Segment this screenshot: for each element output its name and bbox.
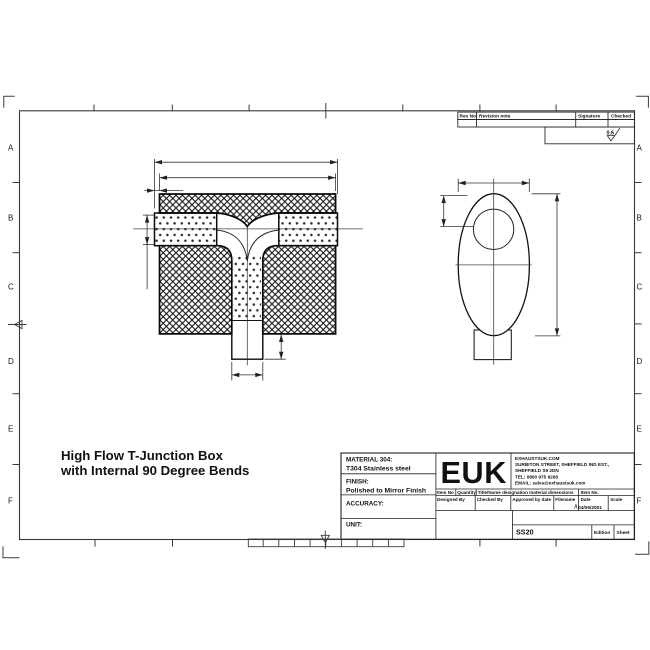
svg-text:SURBITON STREET, SHEFFIELD IND: SURBITON STREET, SHEFFIELD IND EST., bbox=[515, 462, 609, 467]
svg-text:TEL: 0800 975 9268: TEL: 0800 975 9268 bbox=[515, 474, 558, 479]
svg-text:MATERIAL 304:: MATERIAL 304: bbox=[346, 457, 392, 464]
svg-text:E: E bbox=[8, 425, 13, 434]
svg-text:Rev No: Rev No bbox=[460, 114, 477, 120]
svg-text:E: E bbox=[637, 425, 642, 434]
svg-text:with Internal 90 Degree Bends: with Internal 90 Degree Bends bbox=[60, 463, 249, 478]
svg-text:A: A bbox=[637, 144, 643, 153]
svg-text:04/06/2001: 04/06/2001 bbox=[578, 505, 602, 511]
svg-text:Edition: Edition bbox=[594, 530, 610, 536]
svg-text:D: D bbox=[8, 357, 14, 366]
svg-text:Item No: Item No bbox=[437, 490, 454, 495]
svg-text:Signature: Signature bbox=[578, 114, 600, 120]
svg-text:F: F bbox=[637, 497, 642, 506]
svg-text:C: C bbox=[8, 283, 14, 292]
svg-text:Title/Name designation materia: Title/Name designation material dimensio… bbox=[478, 490, 574, 495]
svg-text:Scale: Scale bbox=[610, 497, 622, 502]
svg-text:Revision note: Revision note bbox=[479, 114, 511, 120]
svg-text:Checked By: Checked By bbox=[477, 497, 504, 502]
svg-text:Date: Date bbox=[581, 497, 591, 502]
svg-text:Filename: Filename bbox=[555, 497, 575, 502]
svg-text:T304 Stainless steel: T304 Stainless steel bbox=[346, 466, 411, 473]
svg-text:D: D bbox=[637, 357, 643, 366]
svg-text:A: A bbox=[8, 144, 14, 153]
svg-text:EMAIL: sales@exhaustsuk.com: EMAIL: sales@exhaustsuk.com bbox=[515, 481, 585, 486]
svg-text:FINISH:: FINISH: bbox=[346, 479, 369, 486]
svg-text:B: B bbox=[8, 214, 13, 223]
svg-text:Quantity: Quantity bbox=[457, 490, 476, 495]
svg-text:High Flow T-Junction Box: High Flow T-Junction Box bbox=[61, 448, 224, 463]
svg-text:B: B bbox=[637, 214, 642, 223]
svg-text:F: F bbox=[8, 497, 13, 506]
svg-text:Polished to Mirror Finish: Polished to Mirror Finish bbox=[346, 488, 426, 495]
svg-text:SHEFFIELD S9 2DN: SHEFFIELD S9 2DN bbox=[515, 468, 559, 473]
svg-text:Sheet: Sheet bbox=[617, 530, 630, 536]
svg-text:Designed By: Designed By bbox=[437, 497, 465, 502]
svg-text:EUK: EUK bbox=[441, 456, 507, 490]
svg-text:C: C bbox=[637, 283, 643, 292]
svg-text:Item No.: Item No. bbox=[581, 490, 599, 495]
svg-text:Approved by date: Approved by date bbox=[512, 497, 551, 502]
svg-text:SS20: SS20 bbox=[516, 528, 534, 537]
svg-text:UNIT:: UNIT: bbox=[346, 522, 362, 529]
svg-text:ACCURACY:: ACCURACY: bbox=[346, 501, 384, 508]
svg-text:EXHAUSTSUK.COM: EXHAUSTSUK.COM bbox=[515, 456, 560, 461]
svg-text:Checked: Checked bbox=[611, 114, 631, 120]
